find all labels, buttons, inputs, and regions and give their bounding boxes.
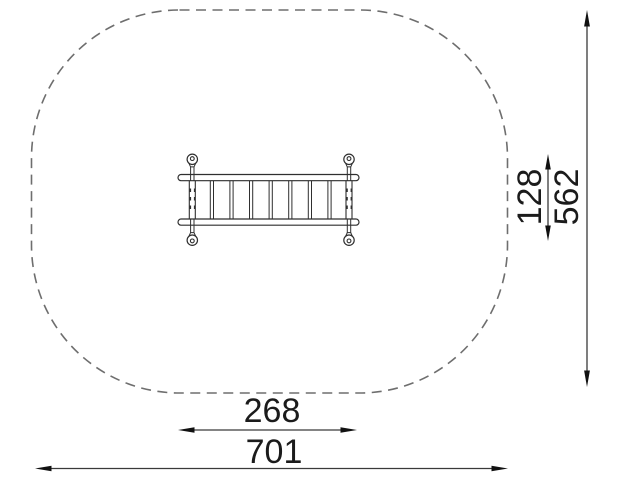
rung xyxy=(250,177,253,222)
arrowhead-left-icon xyxy=(178,427,195,433)
arrowhead-up-icon xyxy=(545,154,551,170)
arrowhead-up-icon xyxy=(584,10,590,27)
rung xyxy=(230,177,233,222)
arrowhead-right-icon xyxy=(492,466,509,472)
anchor-knob xyxy=(187,154,197,167)
dimension-drawing: 268 701 128 562 xyxy=(0,0,640,480)
arrowhead-down-icon xyxy=(545,226,551,242)
ladder-rails xyxy=(178,175,359,226)
zone-width-label: 701 xyxy=(246,435,303,469)
zone-depth-label: 562 xyxy=(550,169,584,226)
item-depth-label: 128 xyxy=(513,169,547,226)
anchor-knob xyxy=(344,154,354,167)
rung xyxy=(308,177,311,222)
anchor-knob xyxy=(187,233,197,246)
arrowhead-down-icon xyxy=(584,371,590,388)
rung xyxy=(328,177,331,222)
arrowhead-left-icon xyxy=(35,466,52,472)
arrowhead-right-icon xyxy=(341,427,358,433)
ladder-rungs xyxy=(210,177,331,222)
rung xyxy=(210,177,213,222)
anchor-knob xyxy=(344,233,354,246)
rail-bottom xyxy=(178,219,359,225)
drawing-canvas xyxy=(0,0,640,480)
rung xyxy=(269,177,272,222)
rung xyxy=(289,177,292,222)
ladder-top-view xyxy=(178,154,359,245)
rail-top xyxy=(178,175,359,181)
item-width-label: 268 xyxy=(244,394,301,428)
